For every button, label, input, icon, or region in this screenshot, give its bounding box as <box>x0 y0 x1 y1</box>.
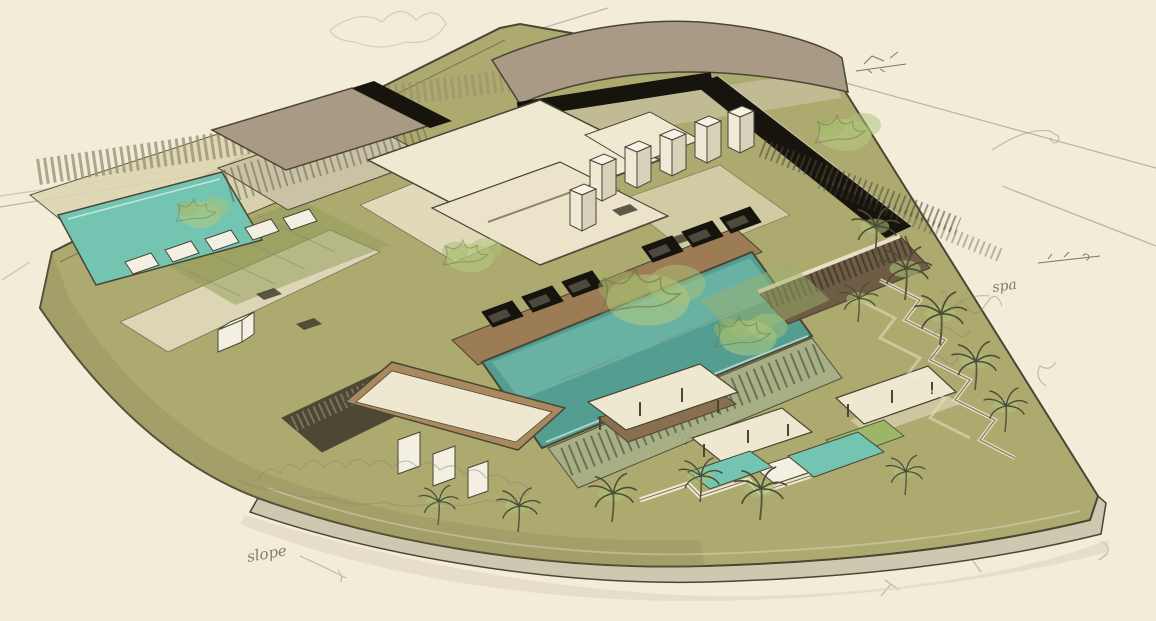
annotation-spa: spa <box>991 277 1017 296</box>
sketch-canvas: slope spa <box>0 0 1156 621</box>
architectural-sketch: slope spa <box>0 0 1156 621</box>
